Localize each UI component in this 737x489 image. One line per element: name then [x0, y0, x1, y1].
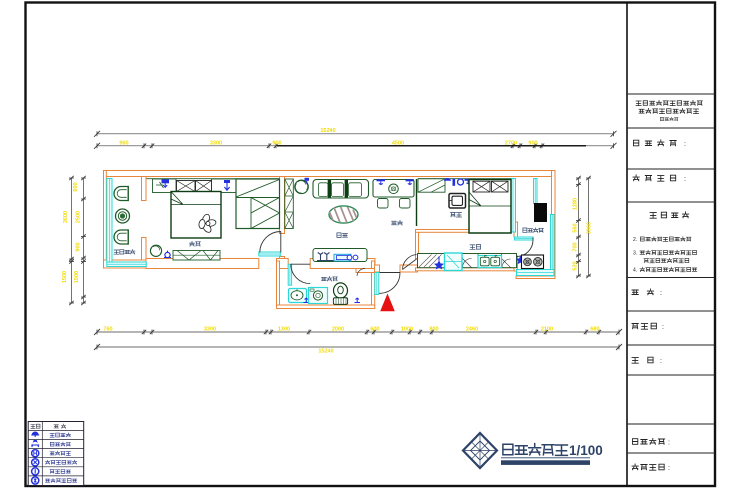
svg-text:1300: 1300 — [278, 327, 290, 333]
svg-text:900: 900 — [76, 242, 82, 251]
svg-text:680: 680 — [590, 327, 599, 333]
svg-text:1500: 1500 — [62, 271, 68, 283]
svg-text::: : — [668, 465, 670, 472]
svg-text:2500: 2500 — [76, 211, 82, 223]
svg-text:3300: 3300 — [210, 141, 222, 147]
svg-text:3300: 3300 — [204, 327, 216, 333]
svg-text:600: 600 — [370, 327, 379, 333]
svg-text::: : — [662, 324, 664, 331]
svg-text:4.: 4. — [633, 268, 637, 274]
svg-text::: : — [668, 440, 670, 447]
svg-text::: : — [660, 290, 662, 297]
svg-text:1/100: 1/100 — [569, 443, 603, 458]
svg-text:2100: 2100 — [541, 327, 553, 333]
svg-text:700: 700 — [573, 242, 579, 251]
svg-text:560: 560 — [573, 223, 579, 232]
svg-text:1500: 1500 — [74, 271, 80, 283]
svg-text:3.: 3. — [633, 251, 637, 257]
svg-text:2700: 2700 — [505, 141, 517, 147]
svg-text:2.: 2. — [633, 237, 637, 243]
svg-text:520: 520 — [573, 261, 579, 270]
svg-text::: : — [684, 176, 686, 183]
svg-text:900: 900 — [272, 141, 281, 147]
svg-text:960: 960 — [119, 141, 128, 147]
svg-text:4500: 4500 — [392, 141, 404, 147]
svg-text:600: 600 — [73, 182, 79, 191]
svg-text:760: 760 — [103, 327, 112, 333]
svg-text:2000: 2000 — [332, 327, 344, 333]
svg-text::: : — [684, 141, 686, 148]
svg-text:15240: 15240 — [320, 128, 335, 134]
svg-text:15240: 15240 — [318, 349, 333, 355]
svg-text:800: 800 — [429, 327, 438, 333]
svg-text:2460: 2460 — [466, 327, 478, 333]
svg-text::: : — [660, 358, 662, 365]
svg-text:900: 900 — [528, 141, 537, 147]
svg-text:3960: 3960 — [587, 222, 593, 234]
svg-text:3600: 3600 — [63, 211, 69, 223]
svg-text:1000: 1000 — [401, 327, 413, 333]
svg-text:1280: 1280 — [573, 198, 579, 210]
